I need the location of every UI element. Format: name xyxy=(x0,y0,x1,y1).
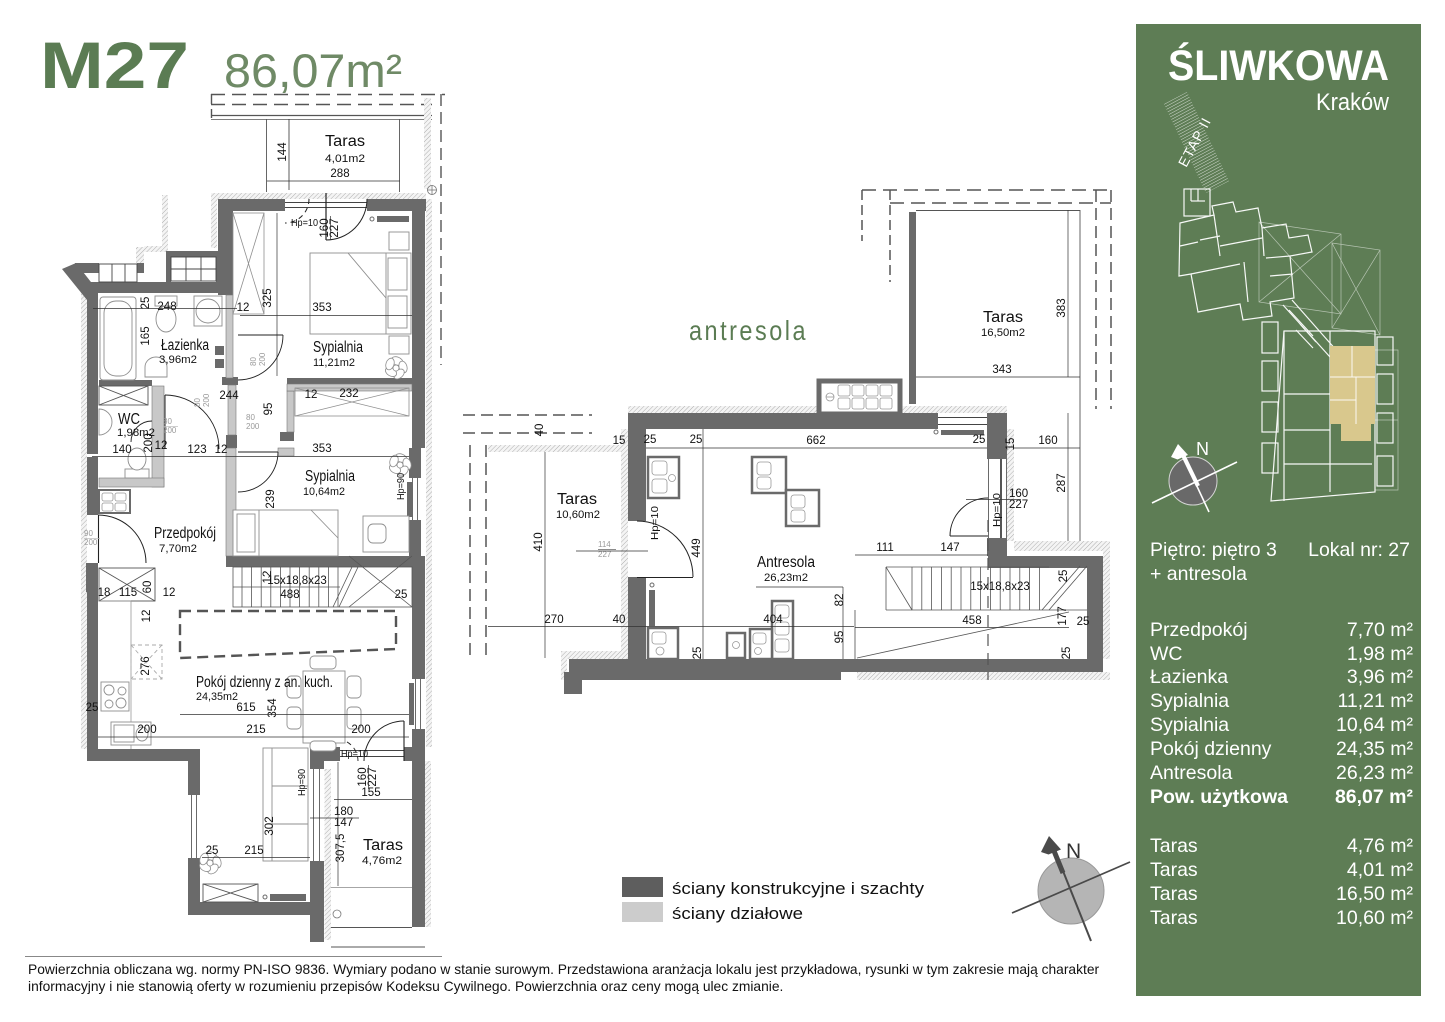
svg-text:449: 449 xyxy=(691,538,703,557)
svg-text:15x18,8x23: 15x18,8x23 xyxy=(970,581,1029,593)
svg-text:200: 200 xyxy=(137,724,156,736)
svg-text:Hp=10: Hp=10 xyxy=(291,217,318,229)
svg-text:200: 200 xyxy=(246,422,260,431)
svg-text:N: N xyxy=(1196,439,1209,459)
svg-text:1,98 m²: 1,98 m² xyxy=(1347,643,1414,665)
svg-text:Przedpokój: Przedpokój xyxy=(154,525,216,542)
svg-text:25: 25 xyxy=(690,434,703,446)
svg-text:200: 200 xyxy=(351,724,370,736)
svg-text:12: 12 xyxy=(163,587,176,599)
svg-text:WC: WC xyxy=(118,411,140,428)
svg-text:25: 25 xyxy=(973,434,986,446)
svg-text:+ antresola: + antresola xyxy=(1150,563,1247,585)
svg-text:144: 144 xyxy=(277,142,289,162)
svg-text:Taras: Taras xyxy=(983,309,1023,326)
svg-text:25: 25 xyxy=(206,845,219,857)
svg-text:16,50 m²: 16,50 m² xyxy=(1336,883,1413,905)
svg-text:informacyjny i nie stanowią of: informacyjny i nie stanowią oferty w roz… xyxy=(28,979,783,994)
svg-text:40: 40 xyxy=(613,614,626,626)
svg-text:95: 95 xyxy=(834,631,846,644)
svg-text:24,35m2: 24,35m2 xyxy=(196,691,238,703)
svg-text:12: 12 xyxy=(237,302,250,314)
svg-text:4,76m2: 4,76m2 xyxy=(362,855,402,867)
svg-text:343: 343 xyxy=(992,364,1011,376)
svg-text:80: 80 xyxy=(249,357,258,366)
svg-text:114: 114 xyxy=(598,540,611,549)
svg-text:307,5: 307,5 xyxy=(335,834,347,863)
svg-text:200: 200 xyxy=(163,426,177,435)
svg-text:25: 25 xyxy=(692,647,704,660)
svg-text:24,35 m²: 24,35 m² xyxy=(1336,738,1413,760)
svg-text:3,96 m²: 3,96 m² xyxy=(1347,666,1414,688)
svg-text:12: 12 xyxy=(262,571,274,584)
svg-text:80: 80 xyxy=(193,398,202,407)
svg-text:Sypialnia: Sypialnia xyxy=(305,468,355,485)
svg-text:288: 288 xyxy=(330,168,349,180)
svg-text:Taras: Taras xyxy=(325,133,365,150)
svg-text:270: 270 xyxy=(544,614,563,626)
svg-text:12: 12 xyxy=(215,444,228,456)
svg-text:Przedpokój: Przedpokój xyxy=(1150,619,1248,641)
svg-text:Powierzchnia obliczana wg. nor: Powierzchnia obliczana wg. normy PN-ISO … xyxy=(28,962,1100,977)
svg-text:90: 90 xyxy=(84,529,93,538)
svg-text:Łazienka: Łazienka xyxy=(1150,666,1228,688)
svg-text:ściany konstrukcyjne i szachty: ściany konstrukcyjne i szachty xyxy=(672,879,925,898)
svg-text:244: 244 xyxy=(219,390,239,402)
svg-text:Taras: Taras xyxy=(1150,907,1198,929)
svg-text:25: 25 xyxy=(395,589,408,601)
svg-text:3,96m2: 3,96m2 xyxy=(159,354,197,366)
svg-text:Sypialnia: Sypialnia xyxy=(1150,714,1229,736)
svg-text:147: 147 xyxy=(940,542,959,554)
svg-text:WC: WC xyxy=(1150,643,1183,665)
svg-text:7,70 m²: 7,70 m² xyxy=(1347,619,1414,641)
svg-text:15: 15 xyxy=(1005,438,1017,451)
svg-text:215: 215 xyxy=(244,845,263,857)
svg-text:11,21m2: 11,21m2 xyxy=(313,357,355,369)
svg-text:18: 18 xyxy=(98,587,111,599)
svg-text:Taras: Taras xyxy=(363,837,403,854)
svg-text:Łazienka: Łazienka xyxy=(161,337,209,354)
svg-text:215: 215 xyxy=(246,724,265,736)
svg-text:95: 95 xyxy=(263,403,275,416)
svg-text:86,07 m²: 86,07 m² xyxy=(1335,786,1414,808)
svg-text:Sypialnia: Sypialnia xyxy=(1150,690,1229,712)
svg-text:123: 123 xyxy=(187,444,206,456)
svg-text:Hp=10: Hp=10 xyxy=(649,506,661,540)
svg-text:227: 227 xyxy=(1009,499,1028,511)
svg-text:287: 287 xyxy=(1056,473,1068,492)
svg-text:325: 325 xyxy=(262,288,274,307)
svg-text:276: 276 xyxy=(140,656,152,675)
svg-text:80: 80 xyxy=(246,413,255,422)
svg-text:40: 40 xyxy=(534,424,546,437)
svg-text:25: 25 xyxy=(644,434,657,446)
svg-text:Pokój dzienny: Pokój dzienny xyxy=(1150,738,1272,760)
svg-text:Sypialnia: Sypialnia xyxy=(313,339,363,356)
svg-text:200: 200 xyxy=(258,352,267,366)
svg-text:26,23 m²: 26,23 m² xyxy=(1336,762,1413,784)
svg-text:7,70m2: 7,70m2 xyxy=(159,543,197,555)
svg-text:404: 404 xyxy=(763,614,783,626)
svg-text:Kraków: Kraków xyxy=(1316,89,1390,116)
svg-text:ŚLIWKOWA: ŚLIWKOWA xyxy=(1168,41,1389,90)
svg-text:60: 60 xyxy=(142,581,154,594)
svg-text:200: 200 xyxy=(84,538,98,547)
svg-text:Hp=90: Hp=90 xyxy=(296,769,308,796)
svg-text:N: N xyxy=(1066,840,1081,863)
svg-text:140: 140 xyxy=(112,444,131,456)
svg-text:Antresola: Antresola xyxy=(1150,762,1233,784)
svg-text:353: 353 xyxy=(312,443,331,455)
svg-text:111: 111 xyxy=(876,542,893,554)
svg-text:239: 239 xyxy=(265,489,277,508)
svg-text:Taras: Taras xyxy=(1150,859,1198,881)
svg-text:155: 155 xyxy=(361,787,380,799)
svg-text:177: 177 xyxy=(1057,606,1069,625)
svg-text:Hp=10: Hp=10 xyxy=(341,748,368,760)
svg-text:Taras: Taras xyxy=(1150,835,1198,857)
svg-text:12: 12 xyxy=(141,610,153,623)
svg-text:12: 12 xyxy=(305,389,318,401)
svg-text:200: 200 xyxy=(143,433,155,452)
svg-text:10,60 m²: 10,60 m² xyxy=(1336,907,1413,929)
svg-text:248: 248 xyxy=(157,301,176,313)
svg-text:Antresola: Antresola xyxy=(757,554,815,571)
svg-text:25: 25 xyxy=(86,702,99,714)
svg-text:25: 25 xyxy=(1077,616,1090,628)
svg-text:4,01 m²: 4,01 m² xyxy=(1347,859,1414,881)
svg-text:302: 302 xyxy=(264,816,276,835)
svg-text:383: 383 xyxy=(1056,298,1068,317)
svg-text:12: 12 xyxy=(155,440,168,452)
svg-text:Pokój dzienny z an. kuch.: Pokój dzienny z an. kuch. xyxy=(196,674,333,691)
svg-text:26,23m2: 26,23m2 xyxy=(764,572,808,584)
svg-text:353: 353 xyxy=(312,302,331,314)
svg-text:160: 160 xyxy=(1038,435,1057,447)
svg-text:232: 232 xyxy=(339,388,358,400)
svg-text:165: 165 xyxy=(140,326,152,345)
svg-text:4,01m2: 4,01m2 xyxy=(325,153,365,165)
svg-text:16,50m2: 16,50m2 xyxy=(981,327,1025,339)
svg-text:25: 25 xyxy=(140,297,152,310)
svg-text:86,07m²: 86,07m² xyxy=(224,44,402,97)
svg-text:80: 80 xyxy=(163,417,172,426)
svg-text:Piętro: piętro 3: Piętro: piętro 3 xyxy=(1150,539,1277,561)
svg-text:Pow. użytkowa: Pow. użytkowa xyxy=(1150,786,1288,808)
svg-text:25: 25 xyxy=(1061,647,1073,660)
svg-text:15x18,8x23: 15x18,8x23 xyxy=(267,575,326,587)
svg-text:Taras: Taras xyxy=(557,491,597,508)
svg-text:82: 82 xyxy=(834,594,846,607)
svg-text:Hp=10: Hp=10 xyxy=(991,493,1003,527)
svg-text:10,64 m²: 10,64 m² xyxy=(1336,714,1413,736)
svg-text:antresola: antresola xyxy=(689,315,808,346)
svg-text:662: 662 xyxy=(806,435,825,447)
svg-text:M27: M27 xyxy=(40,28,189,102)
svg-text:410: 410 xyxy=(533,532,545,551)
svg-text:615: 615 xyxy=(236,702,255,714)
svg-text:147: 147 xyxy=(334,817,353,829)
svg-text:15: 15 xyxy=(613,435,626,447)
svg-text:4,76 m²: 4,76 m² xyxy=(1347,835,1414,857)
svg-text:Hp=90: Hp=90 xyxy=(395,473,407,500)
svg-text:200: 200 xyxy=(202,393,211,407)
svg-text:115: 115 xyxy=(119,587,137,599)
svg-text:10,64m2: 10,64m2 xyxy=(303,486,345,498)
svg-text:10,60m2: 10,60m2 xyxy=(556,509,600,521)
svg-text:ściany działowe: ściany działowe xyxy=(672,904,803,923)
svg-text:25: 25 xyxy=(1058,570,1070,583)
svg-text:11,21 m²: 11,21 m² xyxy=(1337,690,1413,712)
svg-text:488: 488 xyxy=(280,589,299,601)
svg-text:Taras: Taras xyxy=(1150,883,1198,905)
svg-text:458: 458 xyxy=(962,615,981,627)
svg-text:Lokal nr: 27: Lokal nr: 27 xyxy=(1308,539,1410,561)
